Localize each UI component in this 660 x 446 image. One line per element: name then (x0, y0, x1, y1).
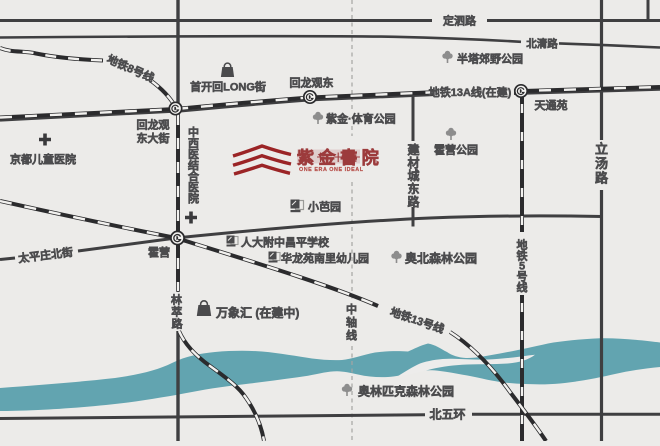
svg-text:萃: 萃 (171, 305, 182, 319)
svg-text:地铁13A线(在建): 地铁13A线(在建) (429, 85, 512, 99)
svg-text:汤: 汤 (595, 156, 608, 171)
svg-text:城: 城 (407, 168, 419, 183)
svg-text:霍营公园: 霍营公园 (434, 143, 478, 157)
svg-text:建: 建 (406, 142, 420, 157)
svg-text:奥北森林公园: 奥北森林公园 (405, 251, 477, 266)
svg-text:立: 立 (595, 142, 608, 157)
svg-text:定泗路: 定泗路 (443, 14, 477, 28)
svg-text:ONE ERA ONE IDEAL: ONE ERA ONE IDEAL (299, 167, 364, 173)
svg-text:路: 路 (595, 171, 609, 186)
svg-text:回龙观东: 回龙观东 (290, 76, 334, 90)
svg-text:中: 中 (346, 302, 357, 316)
svg-text:北五环: 北五环 (429, 407, 465, 422)
svg-text:东大街: 东大街 (137, 131, 170, 145)
svg-text:线: 线 (517, 280, 528, 294)
svg-text:林: 林 (171, 293, 182, 307)
svg-text:天通苑: 天通苑 (535, 98, 568, 112)
svg-text:华龙苑南里幼儿园: 华龙苑南里幼儿园 (281, 251, 369, 265)
svg-text:地: 地 (517, 238, 528, 252)
svg-text:小芭园: 小芭园 (307, 200, 341, 214)
svg-text:霍营: 霍营 (148, 245, 170, 259)
svg-text:中: 中 (188, 125, 199, 139)
svg-text:北清路: 北清路 (526, 37, 558, 50)
svg-text:东: 东 (407, 181, 419, 196)
svg-text:线: 线 (346, 328, 357, 342)
svg-text:院: 院 (188, 191, 199, 205)
svg-text:万象汇 (在建中): 万象汇 (在建中) (215, 305, 299, 320)
svg-text:路: 路 (172, 317, 184, 331)
svg-text:回龙观: 回龙观 (137, 118, 170, 132)
svg-text:紫金·体育公园: 紫金·体育公园 (326, 112, 396, 126)
svg-text:半塔郊野公园: 半塔郊野公园 (457, 52, 523, 66)
svg-text:奥林匹克森林公园: 奥林匹克森林公园 (358, 384, 454, 399)
svg-text:材: 材 (406, 155, 419, 170)
svg-text:合: 合 (188, 169, 200, 183)
svg-text:路: 路 (407, 194, 420, 209)
svg-text:京都儿童医院: 京都儿童医院 (10, 152, 76, 166)
svg-text:人大附中昌平学校: 人大附中昌平学校 (241, 235, 330, 249)
svg-text:结: 结 (187, 158, 199, 172)
svg-text:轴: 轴 (346, 315, 357, 329)
svg-text:首开回LONG街: 首开回LONG街 (190, 80, 266, 94)
